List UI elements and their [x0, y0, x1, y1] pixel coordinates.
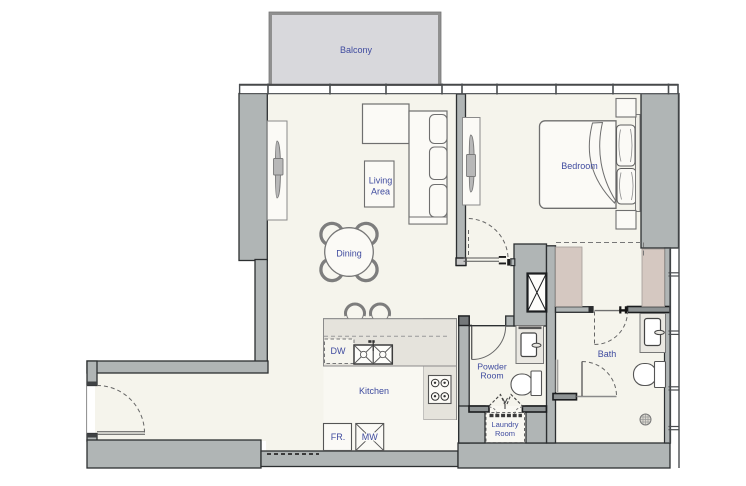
svg-text:Living: Living [369, 175, 393, 185]
svg-text:Balcony: Balcony [340, 45, 373, 55]
svg-text:Bath: Bath [598, 349, 617, 359]
svg-text:Room: Room [495, 429, 515, 438]
svg-text:Bedroom: Bedroom [561, 161, 598, 171]
svg-text:FR.: FR. [331, 432, 346, 442]
svg-text:Dining: Dining [336, 249, 362, 259]
svg-text:Laundry: Laundry [491, 420, 518, 429]
svg-text:MW: MW [362, 432, 378, 442]
svg-text:Area: Area [371, 186, 390, 196]
svg-text:Room: Room [480, 371, 503, 381]
svg-text:DW: DW [331, 346, 346, 356]
svg-text:Kitchen: Kitchen [359, 386, 389, 396]
